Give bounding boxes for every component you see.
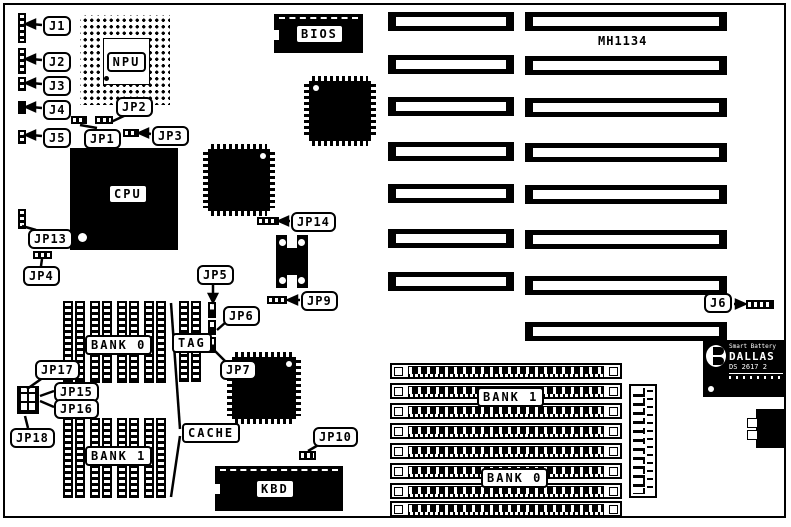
cpu-chip: CPU [70,148,178,250]
qfp-chip-upper [304,76,376,146]
npu-label-text: NPU [113,55,141,69]
mount-hole [298,277,305,284]
expansion-slot-right [525,98,727,117]
cpu-pin1-dot [78,233,87,242]
callout-jp5-label: JP5 [203,268,228,282]
callout-jp4-label: JP4 [29,269,54,283]
callout-j3: J3 [43,76,71,96]
simm-bank0-text: BANK 0 [487,471,542,485]
callout-jp18: JP18 [10,428,55,448]
callout-j6: J6 [704,293,732,313]
simm-clip-right [609,407,618,416]
callout-jp14-label: JP14 [297,215,330,229]
simm-clip-right [609,367,618,376]
simm-clip-left [394,447,403,456]
cache-bank0-socket [156,301,166,383]
cache-bank0-label: BANK 0 [85,335,152,355]
simm-bank1-text: BANK 1 [483,390,538,404]
callout-jp17-label: JP17 [41,363,74,377]
simm-clip-left [394,467,403,476]
jumper-jp9 [267,296,287,304]
callout-jp17: JP17 [35,360,80,380]
expansion-slot-left [388,97,514,116]
tag-text: TAG [178,336,206,350]
jumper-jp14 [257,217,279,225]
qfp-pin1-dot [313,85,319,91]
mount-hole [279,277,286,284]
kbd-controller-chip: KBD [215,466,343,511]
simm-contacts-fine [408,454,604,457]
callout-jp7: JP7 [220,360,257,380]
oscillator-notch-bottom [287,275,297,288]
callout-j1: J1 [43,16,71,36]
dallas-logo-icon [706,345,726,367]
expansion-slot-right [525,185,727,204]
cache-bank1-label: BANK 1 [85,446,152,466]
callout-j1-label: J1 [49,19,65,33]
simm-clip-right [609,487,618,496]
callout-jp13-label: JP13 [34,232,67,246]
cache-bank0-text: BANK 0 [91,338,146,352]
simm-clip-right [609,505,618,514]
jumper-jp5 [208,302,216,318]
simm-bank0-label: BANK 0 [481,468,548,488]
jumper-block-jp15-18 [17,386,39,414]
simm-contacts-fine [408,374,604,377]
qfp-pins-right [371,84,376,138]
callout-jp5: JP5 [197,265,234,285]
callout-jp3: JP3 [152,126,189,146]
callout-j4: J4 [43,100,71,120]
simm-contacts-fine [408,434,604,437]
callout-jp2: JP2 [116,97,153,117]
cache-text: CACHE [188,426,234,440]
callout-jp10-label: JP10 [319,430,352,444]
tag-label: TAG [172,333,212,353]
callout-jp3-label: JP3 [158,129,183,143]
callout-j5: J5 [43,128,71,148]
callout-j5-label: J5 [49,131,65,145]
qfp-pin1-dot [260,153,266,159]
simm-contacts-fine [408,494,604,497]
simm-clip-right [609,467,618,476]
mount-hole [298,239,305,246]
callout-jp9-label: JP9 [307,294,332,308]
callout-jp6: JP6 [223,306,260,326]
power-connector-pins [633,388,645,494]
simm-clip-left [394,367,403,376]
simm-clip-left [394,387,403,396]
cache-bank1-socket [75,418,85,498]
dallas-rtc-module: Smart Battery DALLAS DS 2617 2 [703,340,785,397]
expansion-slot-right [525,230,727,249]
jumper-jp1 [71,116,87,124]
kbd-label-text: KBD [261,482,289,496]
jumper-j6 [746,300,774,309]
jumper-j4 [18,101,26,114]
callout-j4-label: J4 [49,103,65,117]
callout-jp7-label: JP7 [226,363,251,377]
expansion-slot-right [525,56,727,75]
callout-j2: J2 [43,52,71,72]
callout-jp16-label: JP16 [60,402,93,416]
jumper-jp10 [299,451,316,460]
simm-socket-row [390,363,622,379]
bios-chip: BIOS [274,14,363,53]
qfp-pins-right [296,360,301,416]
qfp-chip-middle [203,144,275,216]
expansion-slot-right [525,322,727,341]
cache-bank1-socket [156,418,166,498]
npu-socket: NPU [80,15,170,105]
npu-socket-cavity: NPU [103,38,150,85]
oscillator-component [276,235,308,288]
simm-clip-right [609,427,618,436]
expansion-slot-right [525,143,727,162]
bios-label-text: BIOS [301,27,338,41]
dallas-line2: DALLAS [729,351,783,363]
qfp-pins-bottom [312,141,368,146]
jumper-j1 [18,13,26,43]
qfp-pins-bottom [235,419,293,424]
jumper-jp3 [123,129,139,137]
callout-jp9: JP9 [301,291,338,311]
callout-jp4: JP4 [23,266,60,286]
callout-jp10: JP10 [313,427,358,447]
expansion-slot-left [388,272,514,291]
simm-clip-right [609,387,618,396]
oscillator-notch-top [287,235,297,248]
bios-label: BIOS [295,24,344,44]
callout-jp6-label: JP6 [229,309,254,323]
callout-jp13: JP13 [28,229,73,249]
dallas-dot [708,386,714,392]
simm-clip-left [394,487,403,496]
callout-jp15-label: JP15 [60,385,93,399]
qfp-pin1-dot [286,361,292,367]
npu-pin1-dot [104,76,109,81]
callout-j2-label: J2 [49,55,65,69]
expansion-slot-right [525,276,727,295]
qfp-pins-bottom [211,211,267,216]
qfp-body [309,81,371,141]
dallas-line3: DS 2617 2 [729,363,783,374]
qfp-pins-right [270,152,275,208]
simm-clip-left [394,505,403,514]
callout-jp1: JP1 [84,129,121,149]
expansion-slot-left [388,12,514,31]
jumper-jp4 [33,251,52,259]
cache-bank1-text: BANK 1 [91,449,146,463]
callout-jp18-label: JP18 [16,431,49,445]
callout-j6-label: J6 [710,296,726,310]
cpu-label: CPU [108,184,148,204]
callout-jp16: JP16 [54,399,99,419]
npu-label: NPU [107,52,147,72]
expansion-slot-left [388,142,514,161]
mount-hole [279,239,286,246]
power-connector [629,384,657,498]
simm-socket-row [390,443,622,459]
simm-socket-row [390,423,622,439]
board-model-text: MH1134 [598,34,647,48]
cpu-label-text: CPU [114,187,142,201]
expansion-slot-left [388,55,514,74]
cache-label: CACHE [182,423,240,443]
motherboard-diagram: J1 J2 J3 J4 J5 NPU JP2 JP1 JP3 CPU JP13 … [0,0,791,527]
callout-j3-label: J3 [49,79,65,93]
simm-socket-row [390,501,622,517]
callout-jp14: JP14 [291,212,336,232]
simm-clip-left [394,407,403,416]
jumper-jp13 [18,209,26,229]
power-connector-contacts [647,390,653,492]
keyboard-connector-pin [747,418,758,428]
simm-contacts-fine [408,414,604,417]
expansion-slot-right [525,12,727,31]
callout-jp2-label: JP2 [122,100,147,114]
cache-bank1-socket [63,418,73,498]
simm-clip-right [609,447,618,456]
jumper-j2 [18,48,26,74]
simm-contacts-fine [408,512,604,515]
jumper-j3 [18,77,26,91]
simm-bank1-label: BANK 1 [477,387,544,407]
expansion-slot-left [388,184,514,203]
keyboard-connector-pin [747,430,758,440]
callout-jp1-label: JP1 [90,132,115,146]
keyboard-connector [756,409,786,448]
expansion-slot-left [388,229,514,248]
board-model-value: MH1134 [598,34,647,48]
dallas-fineprint [729,376,783,379]
jumper-jp2 [95,116,113,124]
kbd-label: KBD [255,479,295,499]
jumper-j5 [18,130,26,144]
simm-clip-left [394,427,403,436]
